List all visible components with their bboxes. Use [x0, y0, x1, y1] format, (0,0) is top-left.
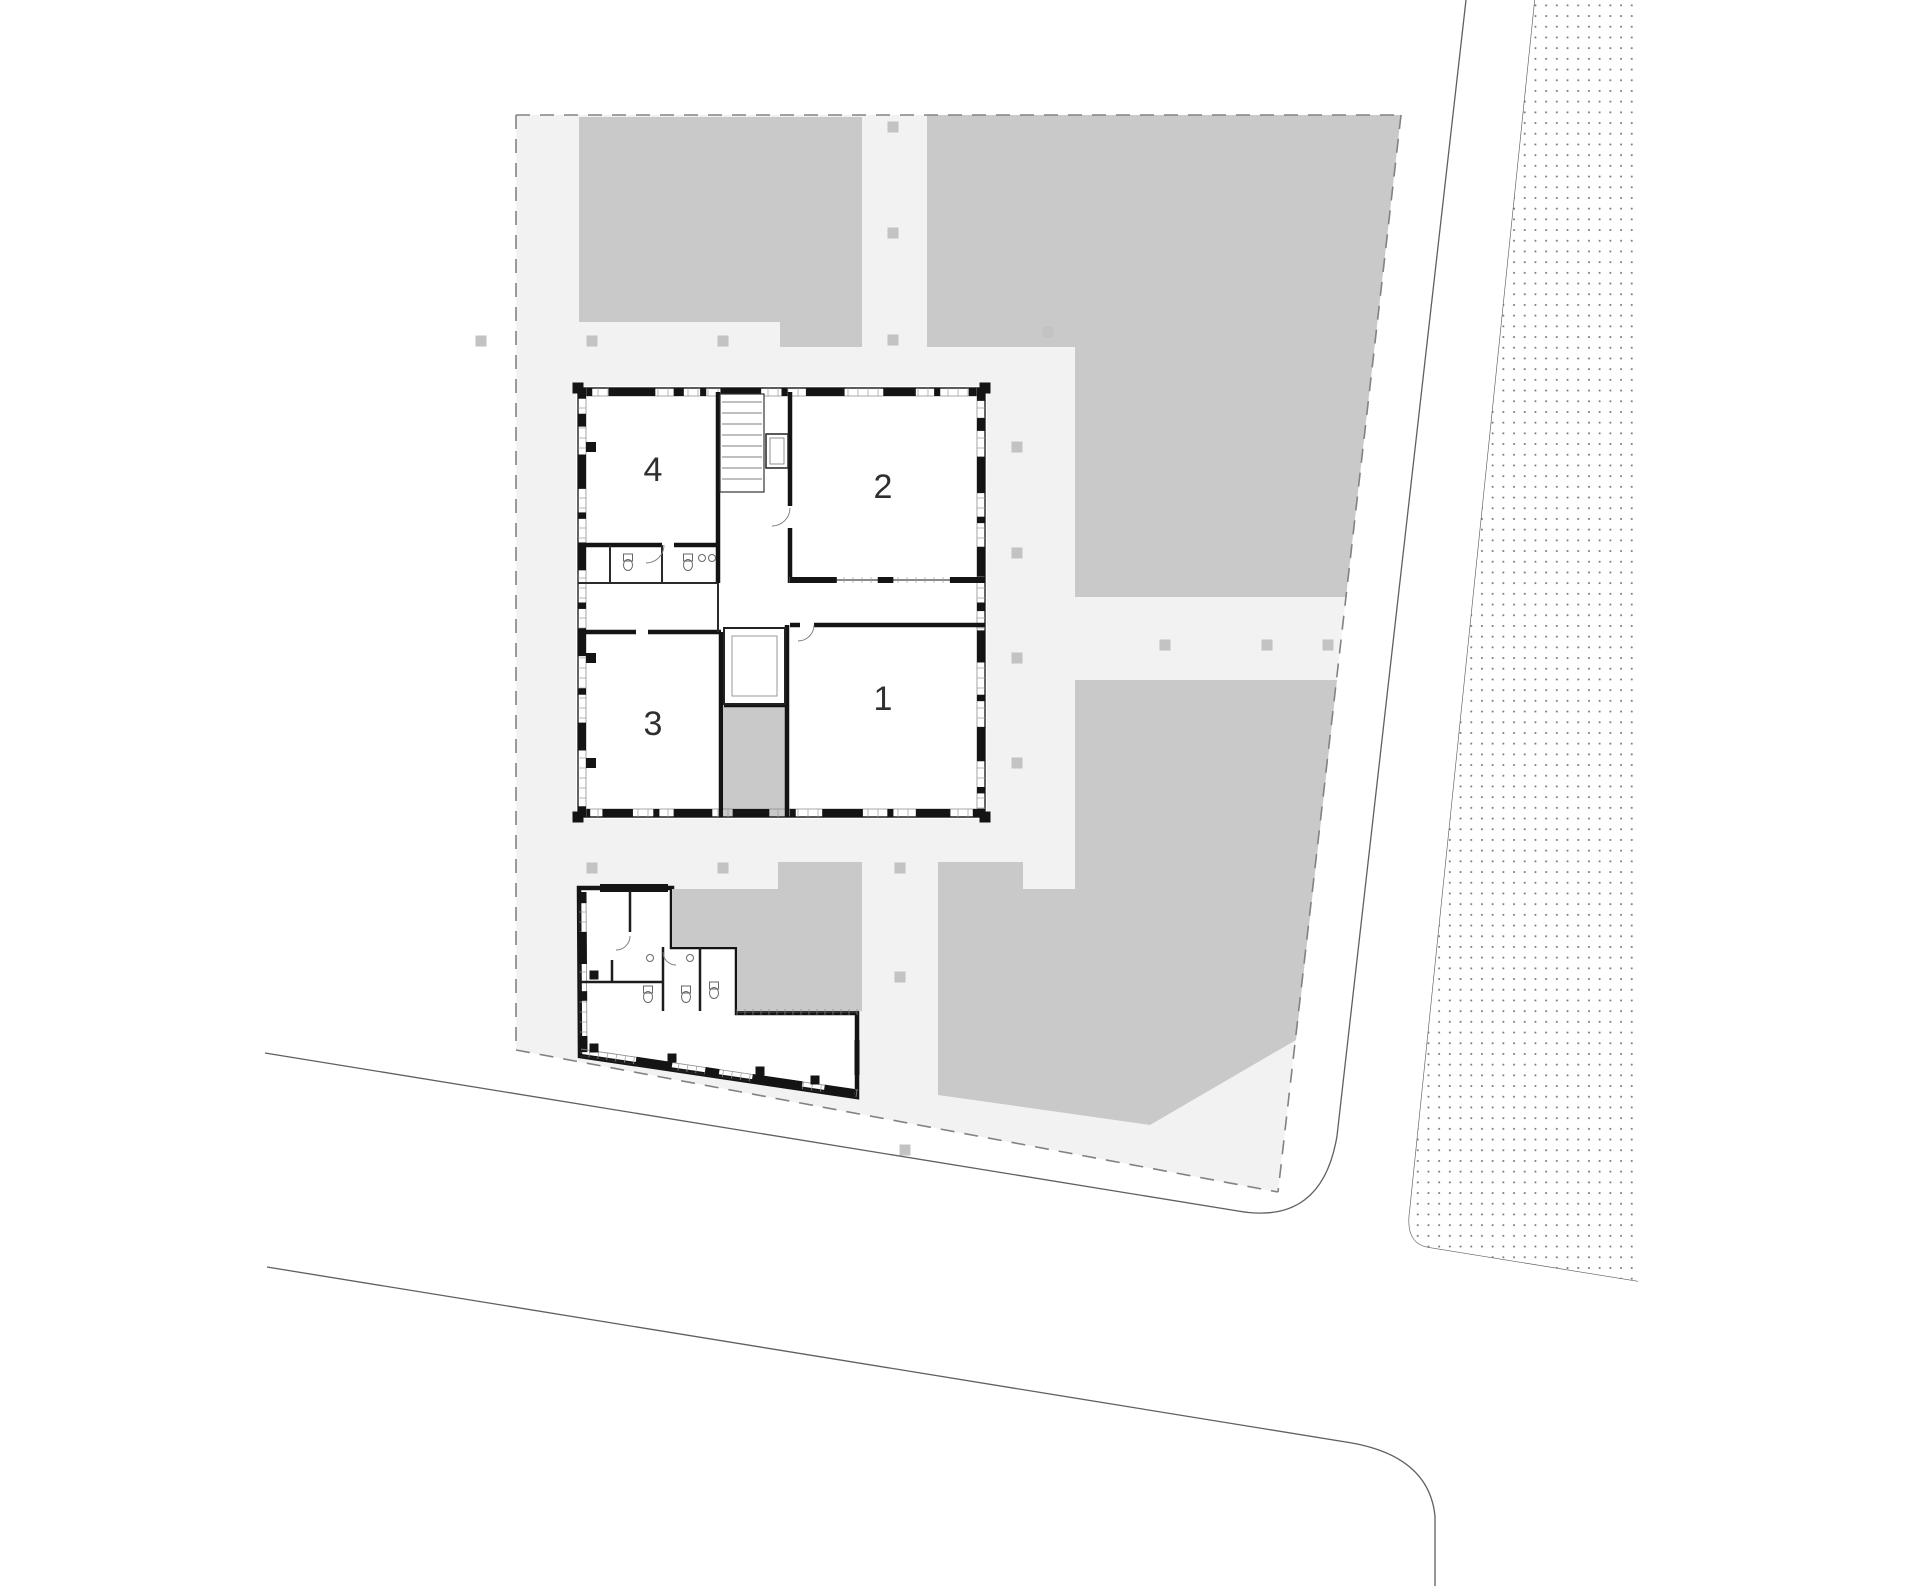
room-label-2: 2 [874, 468, 893, 506]
lawn-top-left [579, 117, 862, 347]
wall-pier [590, 971, 599, 980]
stair-shaft [720, 394, 764, 492]
patio-void [724, 628, 785, 704]
tree-icon [1012, 548, 1023, 559]
column [586, 758, 596, 768]
tree-icon [895, 863, 906, 874]
tree-icon [888, 228, 899, 239]
tree-icon [1012, 653, 1023, 664]
wall-pier [756, 1067, 765, 1076]
corner-pier [573, 383, 584, 394]
room-label-4: 4 [644, 451, 663, 489]
room-label-1: 1 [874, 680, 893, 718]
site-plan-drawing: 1234 [0, 0, 1920, 1586]
corner-pier [980, 383, 991, 394]
wall-line [824, 1089, 854, 1094]
column [586, 442, 596, 452]
wall-pier [811, 1076, 820, 1085]
wall-pier [668, 1054, 677, 1063]
wall-line [705, 1071, 719, 1073]
stipple-area [1409, 0, 1638, 1281]
tree-icon [587, 336, 598, 347]
tree-icon [895, 972, 906, 983]
court-between-rooms [724, 707, 786, 817]
tree-icon [1012, 758, 1023, 769]
tree-icon [888, 335, 899, 346]
tree-icon [1323, 640, 1334, 651]
road-edge-bottom [267, 1267, 1435, 1586]
wall-pier [590, 1044, 599, 1053]
wall-line [636, 1061, 672, 1066]
tree-icon [476, 336, 487, 347]
tree-icon [587, 863, 598, 874]
room-label-3: 3 [644, 705, 663, 743]
tree-icon [1262, 640, 1273, 651]
tree-icon [900, 1145, 911, 1156]
main-building [573, 383, 991, 823]
tree-icon [1012, 442, 1023, 453]
tree-icon [1043, 327, 1054, 338]
site-plan-page: 1234 [0, 0, 1920, 1586]
corner-pier [573, 812, 584, 823]
tree-icon [1160, 640, 1171, 651]
annex-building [579, 862, 862, 1097]
tree-icon [888, 122, 899, 133]
stippled-parcel [1409, 0, 1638, 1281]
tree-icon [718, 336, 729, 347]
tree-icon [718, 863, 729, 874]
column [586, 653, 596, 663]
corner-pier [980, 812, 991, 823]
